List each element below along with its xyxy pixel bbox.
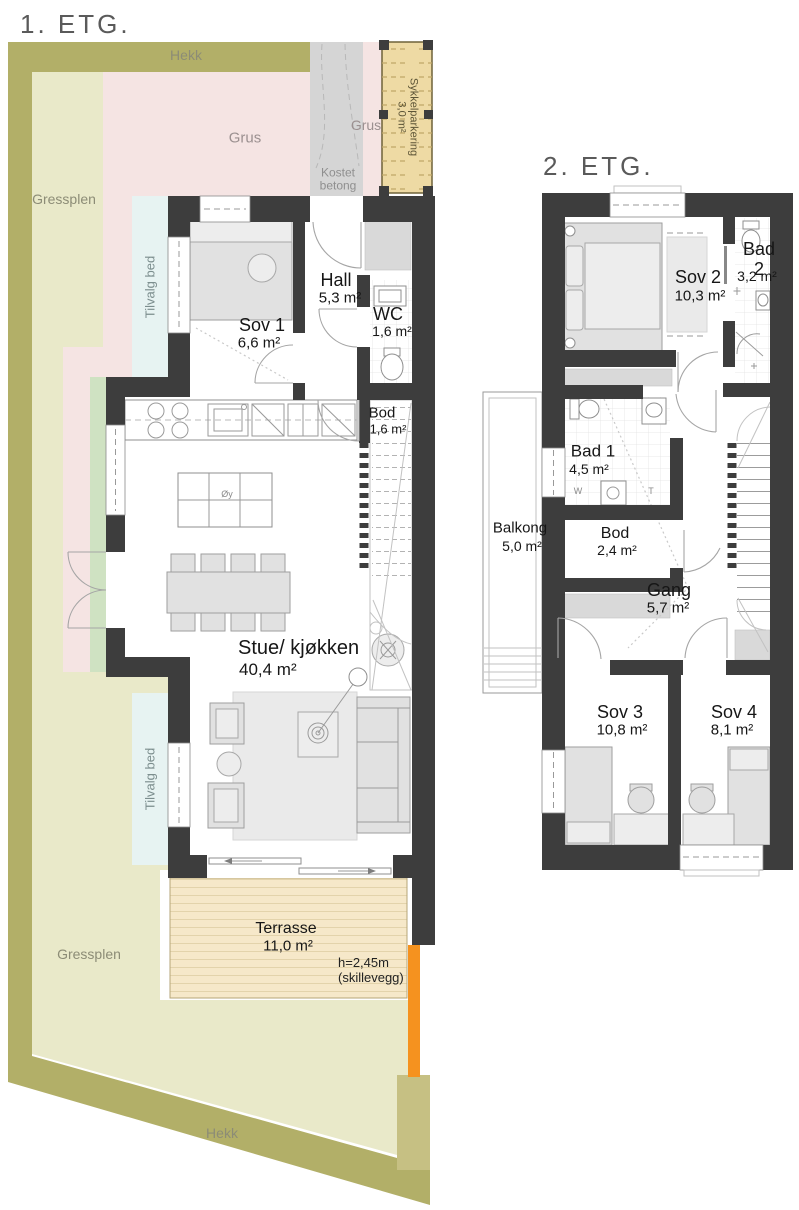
- label-tilvalg-bed-b: Tilvalg bed: [144, 748, 159, 810]
- room-terrasse-area: 11,0 m²: [263, 939, 313, 956]
- label-washer: W: [574, 486, 583, 496]
- label-sykkelparkering: Sykkelparkering 3,0 m²: [395, 78, 420, 156]
- label-tilvalg-bed-a: Tilvalg bed: [144, 256, 159, 318]
- label-hekk-bottom: Hekk: [206, 1126, 238, 1142]
- room-sov1-name: Sov 1: [239, 315, 285, 335]
- label-gressplen-bottom: Gressplen: [57, 947, 121, 963]
- label-grus-b: Grus: [351, 118, 381, 134]
- label-hekk-top: Hekk: [170, 48, 202, 64]
- label-kitchen-island: Øy: [221, 489, 233, 499]
- room-terrasse-name: Terrasse: [255, 920, 316, 938]
- room-bod2-area: 2,4 m²: [597, 543, 637, 559]
- room-wc-area: 1,6 m²: [372, 324, 412, 340]
- room-balkong-name: Balkong: [493, 521, 547, 538]
- room-sov4-area: 8,1 m²: [711, 723, 754, 740]
- floorplan-page: 1. ETG. 2. ETG. Hekk Gressplen Grus Grus…: [0, 0, 799, 1210]
- room-stue-area: 40,4 m²: [239, 660, 297, 680]
- room-bad1-area: 4,5 m²: [569, 462, 609, 478]
- room-sov1-area: 6,6 m²: [238, 336, 281, 353]
- room-sov2-name: Sov 2: [675, 267, 721, 287]
- room-bod1-area: 1,6 m²: [370, 423, 407, 438]
- label-skillevegg: h=2,45m (skillevegg): [338, 956, 404, 986]
- room-sov2-area: 10,3 m²: [675, 289, 726, 306]
- room-sov3-name: Sov 3: [597, 702, 643, 722]
- room-gang-area: 5,7 m²: [647, 601, 690, 618]
- floor1-title: 1. ETG.: [20, 10, 131, 40]
- floor2-title: 2. ETG.: [543, 152, 654, 182]
- room-wc-name: WC: [373, 304, 403, 324]
- label-kostet-betong: Kostet betong: [320, 167, 357, 194]
- label-grus-a: Grus: [229, 131, 262, 148]
- room-bod2-name: Bod: [601, 525, 629, 543]
- room-sov4-name: Sov 4: [711, 702, 757, 722]
- label-gressplen-top: Gressplen: [32, 192, 96, 208]
- room-balkong-area: 5,0 m²: [502, 539, 542, 555]
- room-stue-name: Stue/ kjøkken: [238, 637, 359, 660]
- label-dryer: T: [648, 486, 654, 496]
- room-gang-name: Gang: [647, 580, 691, 600]
- room-bad2-area: 3,2 m²: [737, 269, 777, 285]
- room-bod1-name: Bod: [369, 406, 396, 423]
- room-sov3-area: 10,8 m²: [597, 723, 648, 740]
- room-bad1-name: Bad 1: [571, 441, 615, 460]
- room-hall-name: Hall: [320, 270, 351, 290]
- room-hall-area: 5,3 m²: [319, 291, 362, 308]
